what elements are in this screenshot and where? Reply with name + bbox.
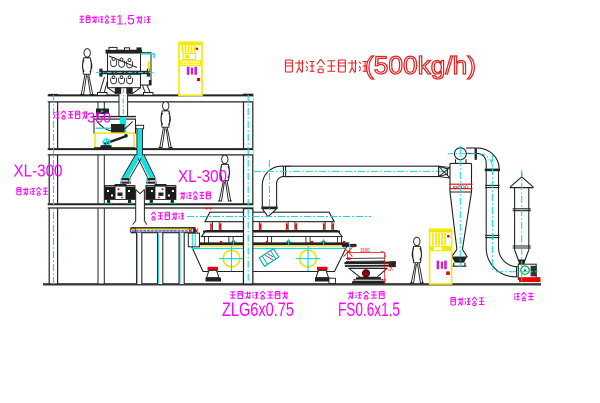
svg-text:350: 350 xyxy=(87,111,111,127)
svg-text:FS0.6x1.5: FS0.6x1.5 xyxy=(338,300,400,321)
svg-text:ZLG6x0.75: ZLG6x0.75 xyxy=(222,300,294,321)
svg-text:XL-300: XL-300 xyxy=(178,166,227,186)
svg-text:(500kg/h): (500kg/h) xyxy=(365,52,476,80)
svg-text:540: 540 xyxy=(388,262,394,271)
svg-text:1.5: 1.5 xyxy=(116,12,135,27)
svg-text:1500: 1500 xyxy=(360,248,370,254)
svg-text:XL-300: XL-300 xyxy=(14,161,63,181)
svg-text:φ600: φ600 xyxy=(453,184,469,190)
